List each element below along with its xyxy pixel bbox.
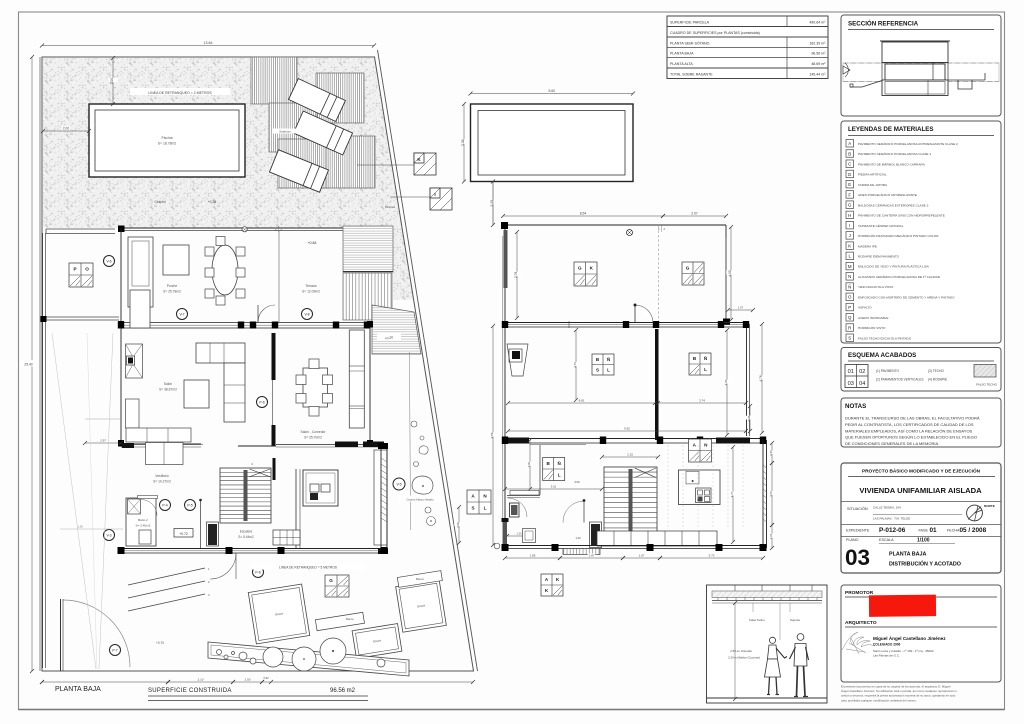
svg-text:490.64 m²: 490.64 m² (809, 21, 826, 25)
svg-text:S= 25.70m2: S= 25.70m2 (304, 436, 322, 440)
svg-text:PAVIMENTO DE CANTERÍA GRIS CON: PAVIMENTO DE CANTERÍA GRIS CON HIDRORREP… (858, 214, 945, 218)
svg-text:Las Palmas de G.C.: Las Palmas de G.C. (873, 654, 900, 658)
svg-text:04: 04 (859, 381, 865, 387)
svg-text:162.39 m²: 162.39 m² (809, 42, 826, 46)
svg-text:Q: Q (848, 315, 852, 320)
svg-text:Césped: Césped (385, 205, 396, 209)
svg-text:4.17: 4.17 (730, 491, 734, 497)
svg-text:B: B (848, 151, 851, 156)
svg-text:L: L (558, 472, 561, 477)
svg-text:P-5: P-5 (187, 504, 192, 508)
svg-text:9.92: 9.92 (624, 427, 630, 431)
svg-text:QUE FUESEN OPORTUNOS SEGÚN LO: QUE FUESEN OPORTUNOS SEGÚN LO ESTABLECID… (845, 435, 977, 440)
svg-text:+0.84: +0.84 (307, 241, 316, 245)
svg-text:3.74: 3.74 (699, 399, 705, 403)
svg-text:Porche: Porche (167, 284, 178, 288)
svg-text:13.64: 13.64 (204, 41, 213, 45)
svg-text:Vestíbulo: Vestíbulo (155, 474, 169, 478)
svg-text:(1) PAVIMENTO: (1) PAVIMENTO (876, 369, 900, 373)
svg-text:DISTRIBUCIÓN Y ACOTADO: DISTRIBUCIÓN Y ACOTADO (889, 560, 961, 568)
svg-text:3.01: 3.01 (551, 485, 557, 489)
svg-text:(3) TECHO: (3) TECHO (928, 369, 944, 373)
svg-text:PIEDRA ARTIFICIAL: PIEDRA ARTIFICIAL (858, 173, 887, 177)
svg-text:2.00: 2.00 (245, 678, 251, 682)
svg-text:PLANTA BAJA: PLANTA BAJA (670, 52, 694, 56)
svg-text:0.92: 0.92 (263, 676, 269, 680)
svg-text:8.54: 8.54 (580, 212, 587, 216)
svg-text:Baño 2: Baño 2 (138, 518, 148, 522)
svg-text:1.20: 1.20 (516, 532, 522, 536)
svg-text:S= 18.78m2: S= 18.78m2 (158, 142, 176, 146)
svg-text:01: 01 (930, 527, 938, 534)
svg-text:3.00: 3.00 (769, 491, 773, 497)
svg-text:8.81: 8.81 (579, 399, 585, 403)
svg-text:2.07: 2.07 (691, 212, 698, 216)
svg-text:PLANTA ALTA: PLANTA ALTA (670, 62, 693, 66)
svg-text:ACERO INOXIDABLE: ACERO INOXIDABLE (858, 316, 888, 320)
svg-text:S= 10.27m2: S= 10.27m2 (153, 480, 171, 484)
svg-text:SITUACIÓN: SITUACIÓN (847, 506, 868, 511)
svg-text:ARQUITECTO: ARQUITECTO (845, 620, 877, 626)
svg-text:HORMIGÓN VISTO: HORMIGÓN VISTO (858, 325, 886, 330)
svg-text:SECCIÓN REFERENCIA: SECCIÓN REFERENCIA (848, 20, 919, 28)
svg-text:Banco: Banco (416, 577, 424, 581)
svg-text:1.07: 1.07 (738, 306, 744, 310)
svg-text:V-8: V-8 (304, 313, 309, 317)
svg-text:A: A (848, 141, 851, 146)
svg-text:V-6: V-6 (106, 260, 111, 264)
svg-text:ASFALTO: ASFALTO (858, 306, 872, 310)
svg-text:S= 38.87m2: S= 38.87m2 (159, 388, 177, 392)
svg-text:TARIMA DE JATOBA: TARIMA DE JATOBA (858, 183, 888, 187)
svg-text:2.10: 2.10 (198, 678, 204, 682)
svg-text:ENFOSCADO CON MORTERO DE CEMEN: ENFOSCADO CON MORTERO DE CEMENTO Y ARENA… (858, 295, 955, 299)
svg-text:LAS PALMAS - T.M. TELDE: LAS PALMAS - T.M. TELDE (873, 517, 910, 521)
svg-text:HORMIGÓN FRATASADO MECÁNICO PI: HORMIGÓN FRATASADO MECÁNICO PINTADO COLO… (858, 233, 939, 238)
svg-text:Cuarzo blanco lavado: Cuarzo blanco lavado (406, 498, 433, 502)
svg-text:1.67: 1.67 (639, 554, 645, 558)
svg-text:0.98: 0.98 (456, 522, 460, 528)
svg-text:FASE: FASE (919, 529, 929, 533)
svg-text:K: K (848, 243, 851, 248)
svg-text:03: 03 (845, 545, 870, 570)
svg-text:Saint Lucía y Castillo - nº 16: Saint Lucía y Castillo - nº 169 - 1º Izq… (873, 649, 934, 653)
svg-text:P-4: P-4 (162, 504, 167, 508)
svg-text:SUPERFICIE PARCELA: SUPERFICIE PARCELA (670, 21, 710, 25)
svg-text:N: N (848, 274, 851, 279)
svg-text:G: G (848, 203, 852, 208)
svg-text:O: O (848, 295, 852, 300)
svg-text:Solarium: Solarium (279, 130, 291, 134)
svg-text:DURANTE EL TRANSCURSO DE LAS O: DURANTE EL TRANSCURSO DE LAS OBRAS, EL F… (845, 416, 980, 421)
svg-text:9.58: 9.58 (490, 432, 494, 438)
svg-text:1.28: 1.28 (77, 525, 83, 529)
svg-text:BALDOSAS CERÁMICAS EXTERIORES: BALDOSAS CERÁMICAS EXTERIORES CLASE 3 (858, 203, 929, 207)
svg-text:96.56 m²: 96.56 m² (811, 52, 826, 56)
svg-text:S: S (596, 367, 599, 372)
svg-text:S: S (471, 506, 474, 511)
svg-text:PLANTA SEMI-SÓTANO: PLANTA SEMI-SÓTANO (670, 41, 710, 46)
svg-text:Terraza: Terraza (306, 284, 317, 288)
svg-text:+0.72: +0.72 (179, 532, 188, 536)
svg-text:1.87: 1.87 (589, 554, 595, 558)
svg-text:96.56 m2: 96.56 m2 (330, 688, 356, 694)
svg-text:DE CONDICIONES GENERALES DE LA: DE CONDICIONES GENERALES DE LA MEMORIA. (845, 441, 939, 446)
svg-text:LINEA DE RETRANQUEO = 2 METROS: LINEA DE RETRANQUEO = 2 METROS (148, 91, 212, 95)
svg-text:VIVIENDA UNIFAMILIAR AISLADA: VIVIENDA UNIFAMILIAR AISLADA (859, 486, 982, 495)
svg-text:PLANO: PLANO (846, 538, 859, 542)
svg-text:Falso Techo: Falso Techo (749, 618, 765, 622)
svg-text:L: L (607, 367, 610, 372)
svg-text:145.44 m²: 145.44 m² (809, 73, 826, 77)
svg-text:NORTE: NORTE (984, 504, 995, 508)
svg-text:caso prohibida cualquier modif: caso prohibida cualquier modificación un… (841, 698, 917, 702)
svg-text:+0.36: +0.36 (208, 200, 217, 204)
svg-text:MATERIALES EMPLEADOS, ASÍ COMO: MATERIALES EMPLEADOS, ASÍ COMO LA RELACI… (845, 428, 973, 433)
svg-text:R: R (848, 325, 851, 330)
svg-text:I: I (849, 223, 850, 228)
svg-text:Salón: Salón (164, 382, 173, 386)
svg-text:TOTAL SOBRE RASANTE: TOTAL SOBRE RASANTE (670, 73, 713, 77)
svg-text:2.78: 2.78 (514, 272, 518, 278)
svg-text:G: G (686, 265, 690, 270)
svg-text:P-7: P-7 (112, 649, 117, 653)
svg-text:1.85: 1.85 (530, 554, 536, 558)
svg-text:MADERA IPE: MADERA IPE (858, 244, 877, 248)
svg-text:5.60: 5.60 (548, 89, 555, 93)
svg-text:LEYENDAS DE MATERIALES: LEYENDAS DE MATERIALES (848, 126, 934, 133)
svg-text:FALSO TECHO: FALSO TECHO (976, 383, 998, 387)
svg-text:ESQUEMA ACABADOS: ESQUEMA ACABADOS (848, 352, 916, 359)
svg-text:ENLUCIDO DE YESO Y PINTURA PLÁ: ENLUCIDO DE YESO Y PINTURA PLÁSTICA LISA (858, 265, 930, 269)
svg-text:Ñ: Ñ (848, 284, 851, 289)
svg-text:01: 01 (848, 369, 854, 375)
svg-text:P: P (848, 305, 851, 310)
svg-text:0.35: 0.35 (769, 450, 773, 456)
svg-text:P-012-06: P-012-06 (879, 527, 906, 534)
svg-text:1.40: 1.40 (575, 536, 581, 540)
svg-text:Escalera: Escalera (240, 530, 253, 534)
svg-text:2.20 en Baños (Cocinas): 2.20 en Baños (Cocinas) (728, 656, 760, 660)
svg-text:V-3: V-3 (106, 534, 111, 538)
svg-text:SUPERFICIE CONSTRUIDA: SUPERFICIE CONSTRUIDA (148, 688, 232, 694)
svg-text:S= 12.09m2: S= 12.09m2 (302, 290, 320, 294)
svg-text:J: J (849, 233, 851, 238)
svg-text:L: L (484, 506, 487, 511)
svg-text:P-6: P-6 (259, 401, 264, 405)
svg-text:F: F (848, 192, 851, 197)
svg-text:2.00: 2.00 (110, 78, 114, 84)
svg-text:S= 25.78m2: S= 25.78m2 (163, 290, 181, 294)
svg-text:El presente documento es copia: El presente documento es copia de su ori… (841, 685, 951, 689)
svg-text:CALLE TEIDEA, S/N: CALLE TEIDEA, S/N (873, 506, 901, 510)
svg-text:4.76: 4.76 (573, 362, 577, 368)
svg-text:4.66: 4.66 (724, 379, 728, 385)
svg-text:L: L (704, 367, 707, 372)
svg-text:PROYECTO BÁSICO MODIFICADO Y D: PROYECTO BÁSICO MODIFICADO Y DE EJECUCIÓ… (862, 467, 981, 474)
svg-text:02: 02 (859, 369, 865, 375)
svg-text:S= 5.44m2: S= 5.44m2 (238, 535, 254, 539)
svg-text:2.00: 2.00 (63, 127, 69, 131)
svg-text:2.00: 2.00 (527, 461, 531, 467)
svg-text:P: P (73, 267, 76, 272)
svg-text:G: G (578, 266, 582, 271)
svg-text:05 / 2008: 05 / 2008 (960, 527, 987, 534)
svg-text:(2) PARAMENTOS VERTICALES: (2) PARAMENTOS VERTICALES (876, 378, 923, 382)
svg-text:Miguel Ángel Castellano Jiméne: Miguel Ángel Castellano Jiménez (873, 635, 946, 641)
svg-text:NOTAS: NOTAS (845, 403, 866, 410)
svg-text:YESO ESCAYOLA VISTA: YESO ESCAYOLA VISTA (858, 285, 894, 289)
svg-text:PAVIMENTO CERÁMICO PORCELANOSA: PAVIMENTO CERÁMICO PORCELANOSA ANTIDESLI… (858, 142, 958, 146)
svg-text:CUADRO DE SUPERFICIES por PLAN: CUADRO DE SUPERFICIES por PLANTAS (const… (670, 31, 760, 35)
svg-text:ESCALA: ESCALA (879, 538, 894, 542)
svg-text:FECHA: FECHA (947, 529, 960, 533)
svg-text:C: C (848, 162, 851, 167)
svg-text:1.02: 1.02 (769, 533, 773, 539)
svg-text:S= 2.40m2: S= 2.40m2 (135, 524, 150, 528)
svg-text:RODAPIE ÍDEM PAVIMENTO: RODAPIE ÍDEM PAVIMENTO (858, 255, 900, 259)
svg-text:Banco: Banco (346, 617, 354, 621)
svg-text:3.00: 3.00 (574, 480, 580, 484)
svg-text:ALICATADO CERÁMICO PORCELANOSA: ALICATADO CERÁMICO PORCELANOSA DE 1ª CAL… (858, 275, 941, 279)
svg-text:4.76: 4.76 (759, 375, 763, 381)
svg-text:O: O (85, 267, 89, 272)
svg-text:COLEGIADO 2906: COLEGIADO 2906 (873, 643, 901, 647)
svg-text:G: G (329, 578, 333, 583)
svg-text:PAVIMENTO DE MÁRMOL BLANCO CAR: PAVIMENTO DE MÁRMOL BLANCO CARRARA (858, 162, 926, 166)
svg-text:FALSO TECHO ESCAYOLA PINTADO: FALSO TECHO ESCAYOLA PINTADO (858, 336, 912, 340)
svg-text:Césped: Césped (155, 200, 166, 204)
svg-text:LINEA DE RETRANQUEO = 5 METROS: LINEA DE RETRANQUEO = 5 METROS (279, 566, 337, 570)
svg-text:25.40: 25.40 (24, 363, 32, 367)
svg-text:Salón - Comedor: Salón - Comedor (301, 430, 327, 434)
svg-text:cesión a terceros, requerirá l: cesión a terceros, requerirá la previa a… (841, 694, 956, 698)
svg-text:2.15: 2.15 (627, 453, 633, 457)
svg-text:V-5: V-5 (396, 483, 401, 487)
svg-text:0.68: 0.68 (747, 415, 751, 421)
svg-text:Piscina: Piscina (162, 136, 173, 140)
svg-text:03: 03 (848, 381, 854, 387)
svg-text:EXPEDIENTE: EXPEDIENTE (846, 529, 870, 533)
svg-text:2.09: 2.09 (490, 200, 494, 207)
svg-text:Ángel Castellano Jiménez. Su u: Ángel Castellano Jiménez. Su utilización… (841, 689, 957, 693)
svg-text:TAPIZANTE CÉSPED NATURAL: TAPIZANTE CÉSPED NATURAL (858, 223, 904, 228)
svg-text:2.50 en Vivienda: 2.50 en Vivienda (730, 649, 752, 653)
svg-text:5.73: 5.73 (709, 554, 715, 558)
svg-text:H: H (848, 213, 851, 218)
svg-text:+0.70: +0.70 (156, 641, 164, 645)
svg-text:48.69 m²: 48.69 m² (811, 62, 826, 66)
svg-text:D: D (848, 172, 851, 177)
svg-text:PAVIMENTO CERÁMICO PORCELANOSA: PAVIMENTO CERÁMICO PORCELANOSA CLASE 1 (858, 152, 931, 156)
svg-text:(4) RODAPIE: (4) RODAPIE (928, 378, 947, 382)
svg-text:P-6: P-6 (255, 571, 260, 575)
svg-text:V-7: V-7 (179, 313, 184, 317)
svg-text:PLANTA BAJA: PLANTA BAJA (889, 552, 927, 558)
svg-text:GRES PORCELÁNICO ANTIDESLIZANT: GRES PORCELÁNICO ANTIDESLIZANTE (858, 193, 917, 197)
svg-text:S: S (848, 336, 851, 341)
svg-text:PROMOTOR: PROMOTOR (845, 590, 874, 596)
svg-text:E: E (848, 182, 851, 187)
svg-text:PLANTA BAJA: PLANTA BAJA (55, 686, 101, 693)
svg-text:1/100: 1/100 (917, 538, 930, 544)
svg-text:4.00: 4.00 (728, 270, 732, 276)
svg-text:3.38: 3.38 (461, 139, 465, 146)
svg-text:M: M (848, 264, 852, 269)
svg-text:2.97: 2.97 (100, 439, 106, 443)
svg-text:Soporte: Soporte (790, 618, 801, 622)
svg-text:PEDIR AL CONTRATISTA, LOS CERT: PEDIR AL CONTRATISTA, LOS CERTIFICADOS D… (845, 422, 974, 427)
